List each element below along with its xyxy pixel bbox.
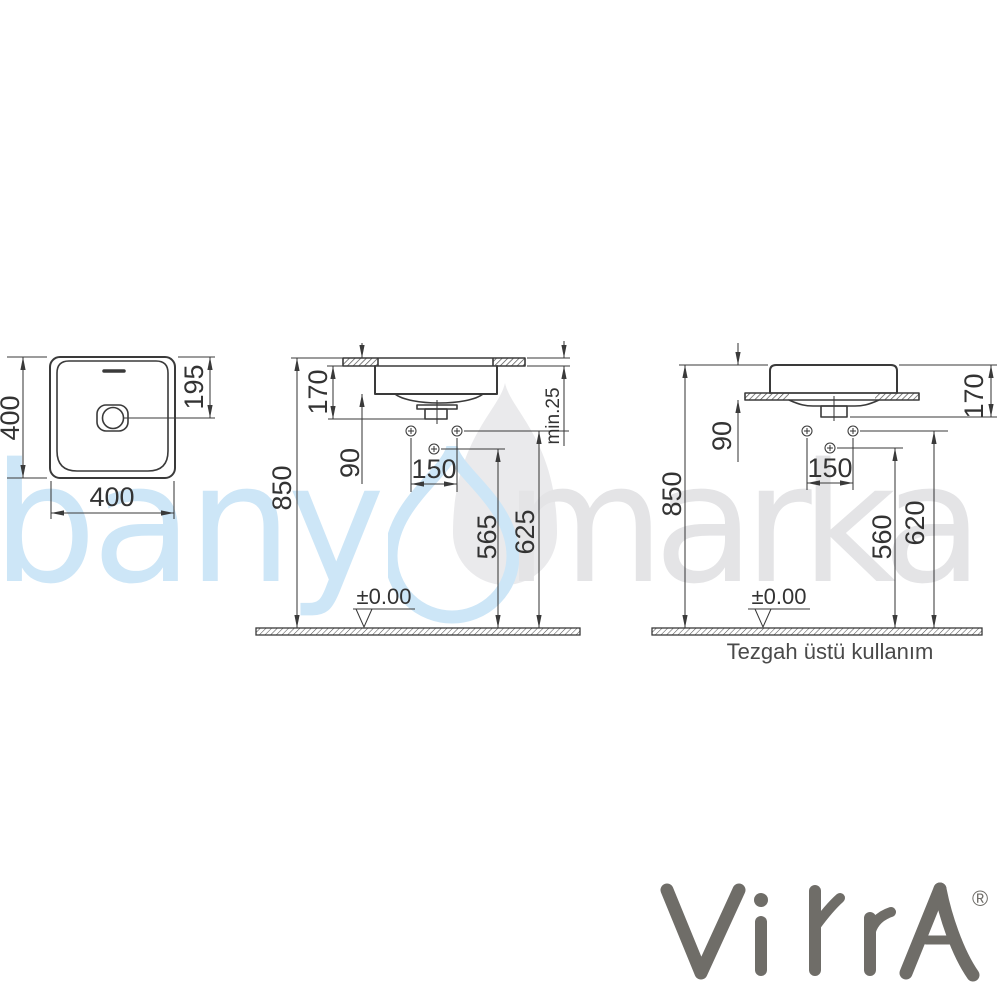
countertop-view-drawing: 150 90 170 850 620 560 ±0.00 Tez xyxy=(652,343,997,664)
floor-section-right xyxy=(652,628,982,635)
dim-right-upper-connection: 620 xyxy=(900,500,930,545)
datum-triangle-right xyxy=(755,609,771,627)
datum-label-right: ±0.00 xyxy=(752,584,807,609)
dim-mid-counter-thickness: min.25 xyxy=(543,387,564,444)
view-caption: Tezgah üstü kullanım xyxy=(727,639,934,664)
datum-triangle-mid xyxy=(356,609,372,627)
dim-mid-upper-connection: 625 xyxy=(510,509,540,554)
spec-sheet: bany marka xyxy=(0,0,1000,1000)
top-view-drawing: 400 195 400 xyxy=(0,357,215,519)
datum-label-mid: ±0.00 xyxy=(357,584,412,609)
dim-mid-basin-height: 170 xyxy=(303,369,333,414)
connection-points-2 xyxy=(802,426,858,453)
counter-hatch-right xyxy=(493,358,525,366)
registered-trademark: ® xyxy=(972,886,988,911)
counter-hatch-left-2 xyxy=(745,393,789,400)
dim-right-lower-connection: 560 xyxy=(867,514,897,559)
dim-top-view-width: 400 xyxy=(89,482,134,512)
drain-trap xyxy=(425,409,447,419)
floor-section-mid xyxy=(256,628,580,635)
technical-drawing: 400 195 400 xyxy=(0,0,1000,1000)
dim-right-hole-spacing: 150 xyxy=(807,453,852,483)
dim-mid-tap-offset: 90 xyxy=(335,448,365,478)
vitra-wordmark xyxy=(667,889,973,975)
basin-body-section xyxy=(375,366,497,394)
vitra-logo: ® xyxy=(667,886,988,975)
counter-hatch-right-2 xyxy=(875,393,919,400)
dim-mid-hole-spacing: 150 xyxy=(411,454,456,484)
dim-mid-rim-height: 850 xyxy=(267,465,297,510)
dim-right-basin-height: 170 xyxy=(959,373,989,418)
semi-recessed-view-drawing: 150 90 170 850 min.25 625 565 xyxy=(256,341,580,635)
basin-body-on-counter xyxy=(770,365,897,393)
dim-right-tap-offset: 90 xyxy=(707,421,737,451)
dim-right-rim-height: 850 xyxy=(657,471,687,516)
connection-points xyxy=(406,426,462,454)
dim-mid-lower-connection: 565 xyxy=(472,514,502,559)
drain-hole xyxy=(103,408,124,429)
bowl-underside xyxy=(395,394,483,403)
counter-hatch-left xyxy=(343,358,378,366)
basin-inner-rim xyxy=(57,361,168,471)
dim-top-view-drain-offset: 195 xyxy=(179,364,209,409)
dim-top-view-depth: 400 xyxy=(0,395,25,440)
